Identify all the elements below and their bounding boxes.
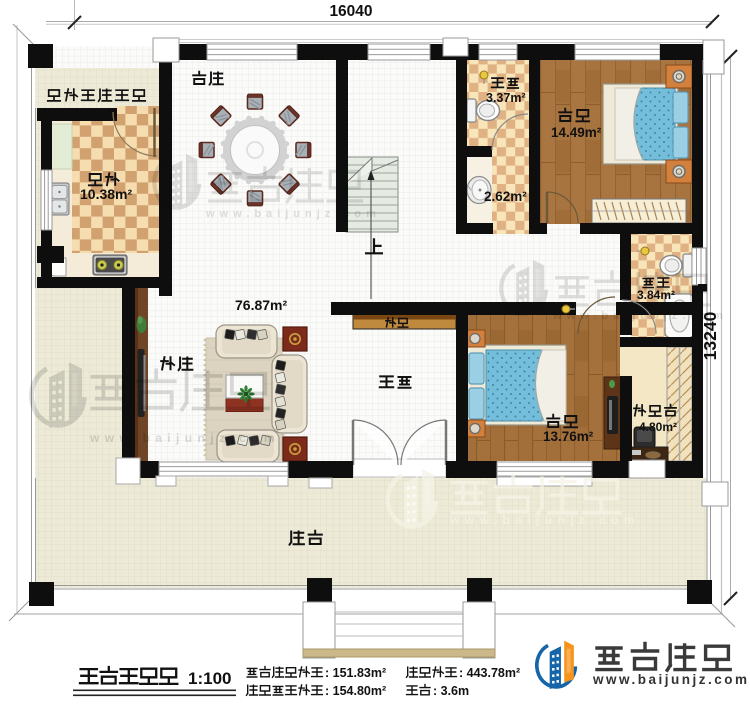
svg-text:13.76m²: 13.76m² — [543, 429, 594, 444]
svg-text:16040: 16040 — [329, 3, 372, 20]
svg-text:: 443.78m²: : 443.78m² — [459, 666, 520, 680]
svg-text:www.baijunjz.com: www.baijunjz.com — [205, 208, 381, 220]
svg-text:www.baijunjz.com: www.baijunjz.com — [592, 672, 750, 687]
svg-text:www.baijunjz.com: www.baijunjz.com — [552, 310, 728, 322]
svg-text:1:100: 1:100 — [188, 669, 231, 688]
svg-text:14.49m²: 14.49m² — [551, 125, 602, 140]
svg-text:3.37m²: 3.37m² — [486, 91, 526, 105]
svg-text:: 151.83m²: : 151.83m² — [325, 666, 386, 680]
svg-text:www.baijunjz.com: www.baijunjz.com — [89, 431, 280, 445]
svg-text:10.38m²: 10.38m² — [80, 186, 132, 202]
svg-text:www.baijunjz.com: www.baijunjz.com — [449, 513, 640, 527]
svg-text:2.62m²: 2.62m² — [484, 189, 527, 204]
svg-text:4.80m²: 4.80m² — [639, 420, 677, 434]
svg-text:76.87m²: 76.87m² — [235, 297, 287, 313]
svg-text:: 154.80m²: : 154.80m² — [325, 684, 386, 698]
svg-text:: 3.6m: : 3.6m — [433, 684, 469, 698]
